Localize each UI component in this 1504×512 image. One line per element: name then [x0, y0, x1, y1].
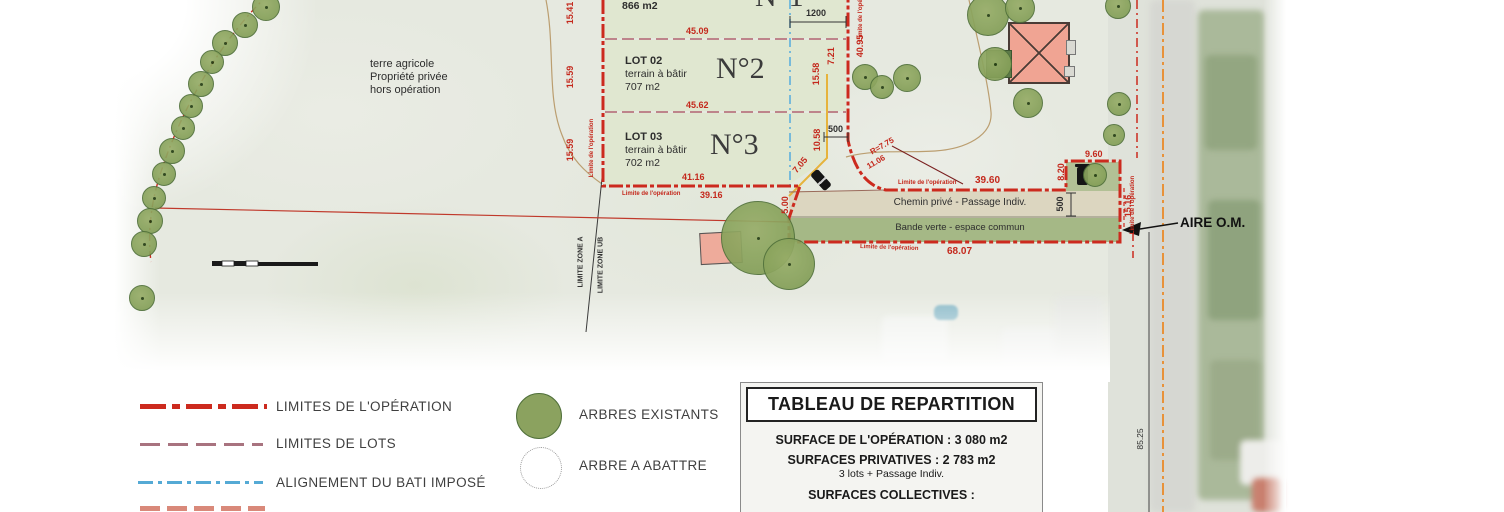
dim-lot1-left: 15.41: [565, 2, 575, 25]
dim-access-west: 5.00: [780, 196, 790, 214]
lot2-type: terrain à bâtir: [625, 68, 687, 80]
lot3-label: LOT 03: [625, 131, 662, 143]
lot1-number: N°1: [755, 0, 804, 14]
dim-lot2-width: 45.62: [686, 100, 709, 110]
limite-label-west: Limite de l'opération: [589, 119, 595, 177]
dim-chemin-top: 39.60: [975, 175, 1000, 186]
repartition-table: TABLEAU DE REPARTITION SURFACE DE L'OPÉR…: [740, 382, 1043, 512]
zone-note-line1: terre agricole: [370, 58, 448, 71]
legend-swatch-bati-alignment: [138, 481, 263, 484]
dim-aire-west: 8.20: [1056, 163, 1066, 181]
dim-lot1-width: 45.09: [686, 26, 709, 36]
site-plan-canvas: terre agricole Propriété privée hors opé…: [0, 0, 1504, 512]
dim-road-length: 85.25: [1135, 428, 1145, 449]
table-row-collective-surfaces: SURFACES COLLECTIVES :: [741, 488, 1042, 502]
zone-ub-label: LIMITE ZONE UB: [598, 237, 605, 293]
legend-existing-tree-icon: [516, 393, 562, 439]
repartition-table-title: TABLEAU DE REPARTITION: [746, 387, 1037, 422]
dim-gabarit-mid: 500: [828, 124, 843, 134]
dim-south-west: 39.16: [700, 190, 723, 200]
dim-lot2-left: 15.59: [565, 66, 575, 89]
legend-swatch-partial: [140, 506, 265, 511]
table-row-operation-surface: SURFACE DE L'OPÉRATION : 3 080 m2: [741, 433, 1042, 447]
existing-house: [1008, 22, 1070, 84]
legend-label-existing-trees: ARBRES EXISTANTS: [579, 407, 719, 422]
legend-label-lot-limit: LIMITES DE LOTS: [276, 436, 396, 451]
lot2-label: LOT 02: [625, 55, 662, 67]
zone-note-line3: hors opération: [370, 84, 448, 97]
dim-chemin-width: 500: [1055, 196, 1065, 211]
dim-lot2-right: 15.58: [811, 63, 821, 86]
green-strip-label: Bande verte - espace commun: [855, 222, 1065, 233]
private-path-label: Chemin privé - Passage Indiv.: [855, 197, 1065, 208]
limite-label-north: Limite de l'opération: [858, 0, 864, 41]
legend-swatch-lot-limit: [140, 443, 263, 446]
legend-tree-to-fell-icon: [520, 447, 562, 489]
table-row-lots-detail: 3 lots + Passage Indiv.: [741, 468, 1042, 480]
dim-gabarit-top: 1200: [806, 8, 826, 18]
repartition-table-body: SURFACE DE L'OPÉRATION : 3 080 m2 SURFAC…: [741, 422, 1042, 502]
dim-right-upper: 7.21: [826, 47, 836, 65]
existing-building: [699, 231, 743, 265]
waste-area-label: AIRE O.M.: [1180, 215, 1245, 230]
lot3-type: terrain à bâtir: [625, 144, 687, 156]
lot2-label-block: LOT 02 terrain à bâtir 707 m2: [625, 55, 687, 93]
dim-lot3-left: 15.59: [565, 139, 575, 162]
zone-a-label: LIMITE ZONE A: [578, 236, 585, 287]
limite-label-east: Limite de l'opération: [1130, 176, 1136, 234]
table-row-private-surfaces: SURFACES PRIVATIVES : 2 783 m2: [741, 453, 1042, 467]
lot2-number: N°2: [716, 52, 765, 86]
lot3-area: 702 m2: [625, 157, 660, 169]
legend-label-bati-alignment: ALIGNEMENT DU BATI IMPOSÉ: [276, 475, 486, 490]
legend-label-operation-limit: LIMITES DE L'OPÉRATION: [276, 399, 452, 414]
limite-label-south1: Limite de l'opération: [622, 191, 680, 197]
dim-south: 68.07: [947, 246, 972, 257]
dim-lot3-width: 41.16: [682, 172, 705, 182]
limite-label-chemin: Limite de l'opération: [898, 180, 956, 186]
zone-note: terre agricole Propriété privée hors opé…: [370, 58, 448, 98]
dim-lot3-right: 10.58: [812, 129, 822, 152]
lot3-label-block: LOT 03 terrain à bâtir 702 m2: [625, 131, 687, 169]
lot3-number: N°3: [710, 128, 759, 162]
lot1-area: 866 m2: [622, 0, 658, 13]
waste-bin-icon: [1077, 167, 1088, 185]
house-annex: [1064, 66, 1075, 77]
legend-label-tree-to-fell: ARBRE A ABATTRE: [579, 458, 707, 473]
zone-note-line2: Propriété privée: [370, 71, 448, 84]
dim-aire-top: 9.60: [1085, 149, 1103, 159]
legend-swatch-operation-limit: [140, 404, 267, 409]
lot2-area: 707 m2: [625, 81, 660, 93]
house-annex: [1066, 40, 1076, 55]
scale-bar: [212, 261, 318, 266]
garden-shed: [986, 50, 1012, 78]
